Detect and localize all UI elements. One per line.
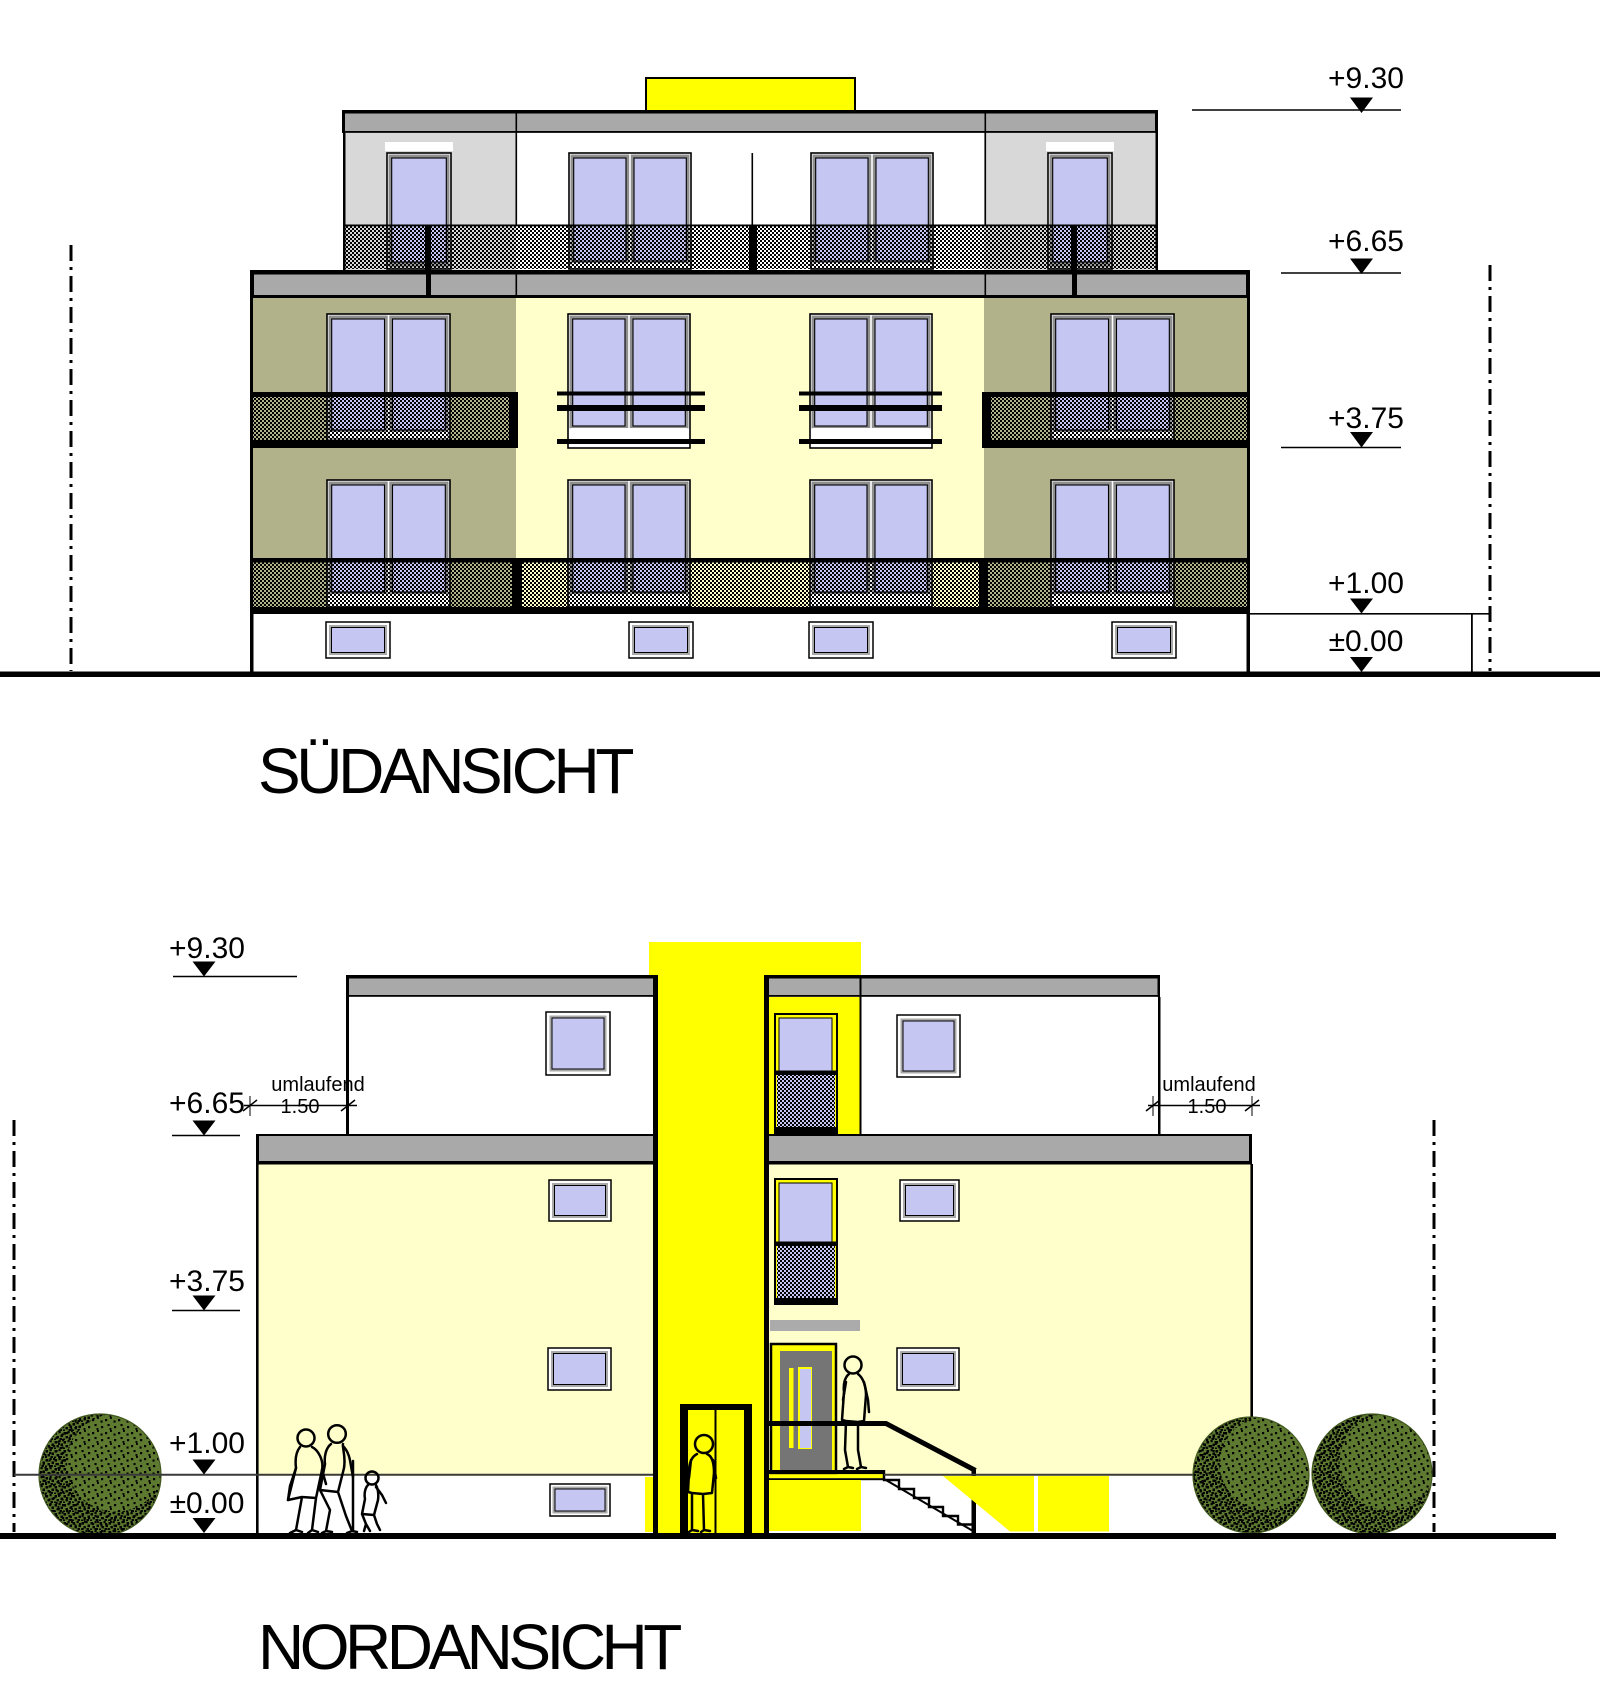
svg-text:±0.00: ±0.00 xyxy=(1329,625,1404,658)
svg-text:SÜDANSICHT: SÜDANSICHT xyxy=(258,735,633,807)
svg-text:+6.65: +6.65 xyxy=(1328,225,1404,258)
svg-text:+3.75: +3.75 xyxy=(1328,402,1404,435)
svg-text:+9.30: +9.30 xyxy=(169,932,245,965)
svg-text:+9.30: +9.30 xyxy=(1328,62,1404,95)
svg-text:+1.00: +1.00 xyxy=(1328,567,1404,600)
svg-text:umlaufend: umlaufend xyxy=(1162,1074,1255,1096)
svg-text:1.50: 1.50 xyxy=(281,1096,320,1118)
svg-text:+3.75: +3.75 xyxy=(169,1265,245,1298)
svg-text:+6.65: +6.65 xyxy=(169,1087,245,1120)
svg-text:±0.00: ±0.00 xyxy=(170,1487,245,1520)
svg-text:+1.00: +1.00 xyxy=(169,1427,245,1460)
svg-text:umlaufend: umlaufend xyxy=(271,1074,364,1096)
svg-text:1.50: 1.50 xyxy=(1188,1096,1227,1118)
svg-text:NORDANSICHT: NORDANSICHT xyxy=(258,1611,681,1683)
